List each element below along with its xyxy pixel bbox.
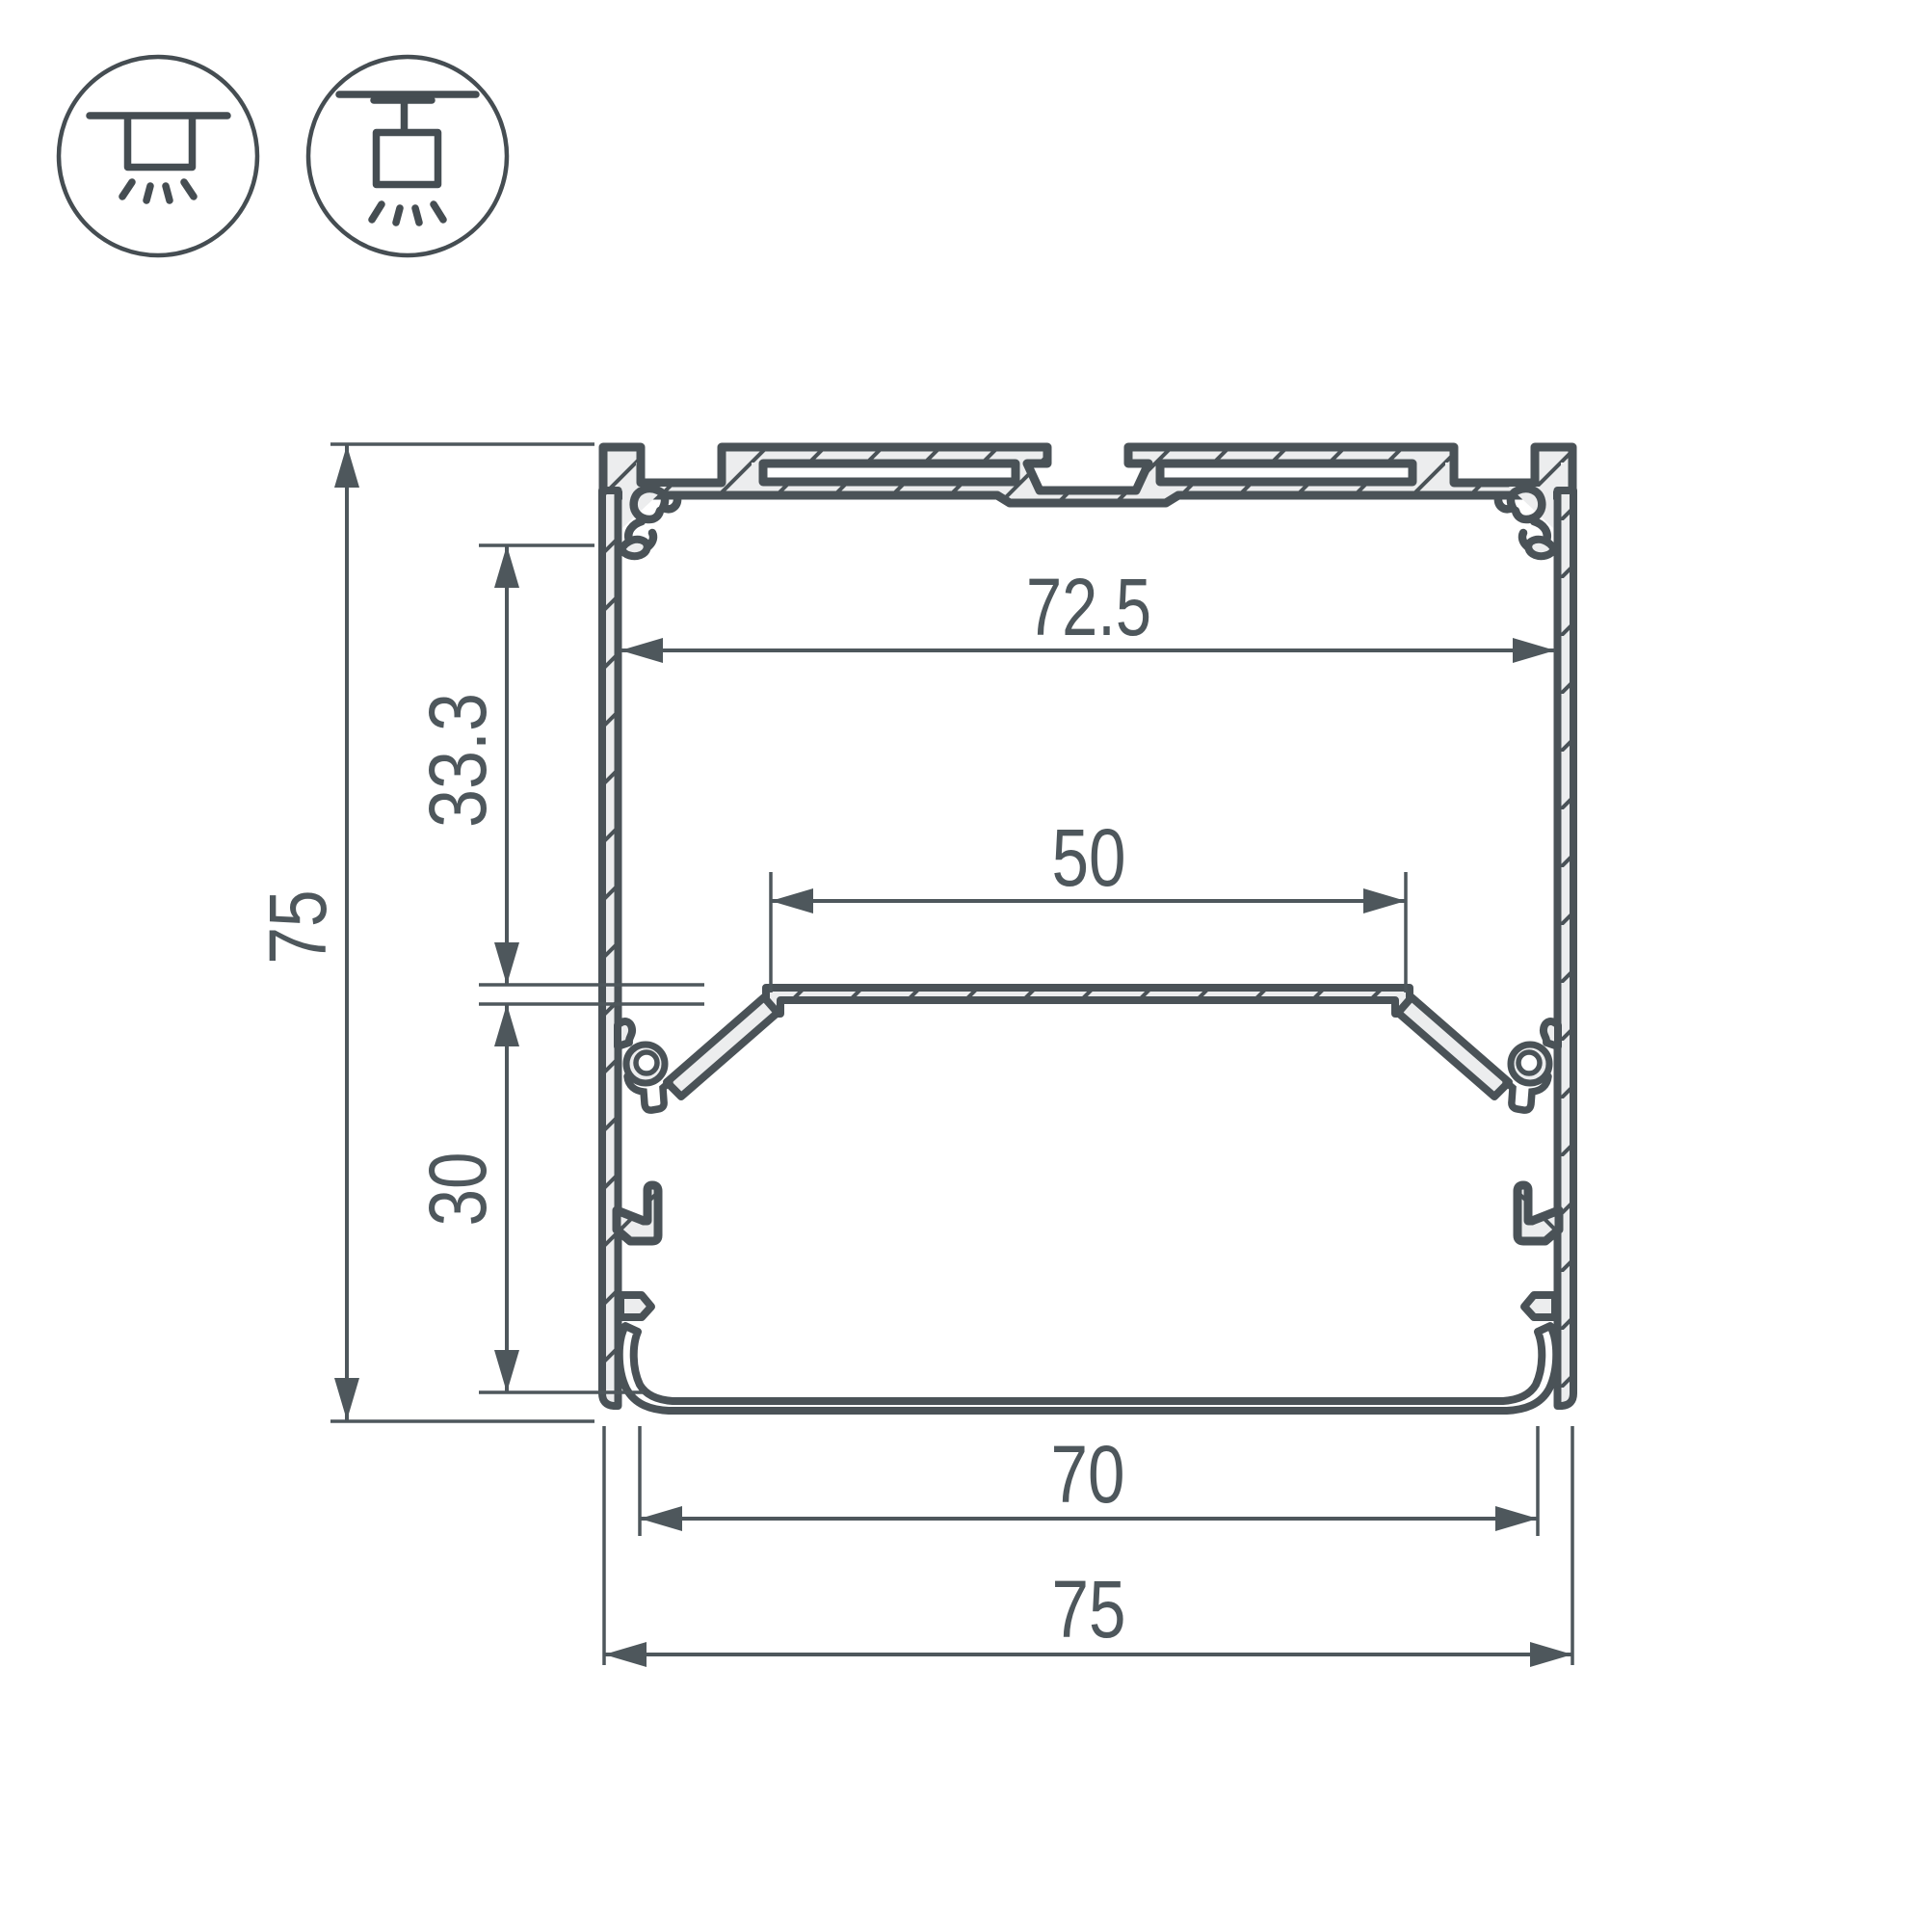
svg-text:72.5: 72.5 [1026, 562, 1151, 652]
svg-text:75: 75 [1052, 1564, 1126, 1654]
svg-text:75: 75 [252, 890, 343, 965]
svg-text:33.3: 33.3 [412, 693, 503, 828]
svg-text:70: 70 [1051, 1429, 1125, 1520]
svg-text:30: 30 [412, 1152, 503, 1227]
svg-text:50: 50 [1052, 812, 1126, 903]
